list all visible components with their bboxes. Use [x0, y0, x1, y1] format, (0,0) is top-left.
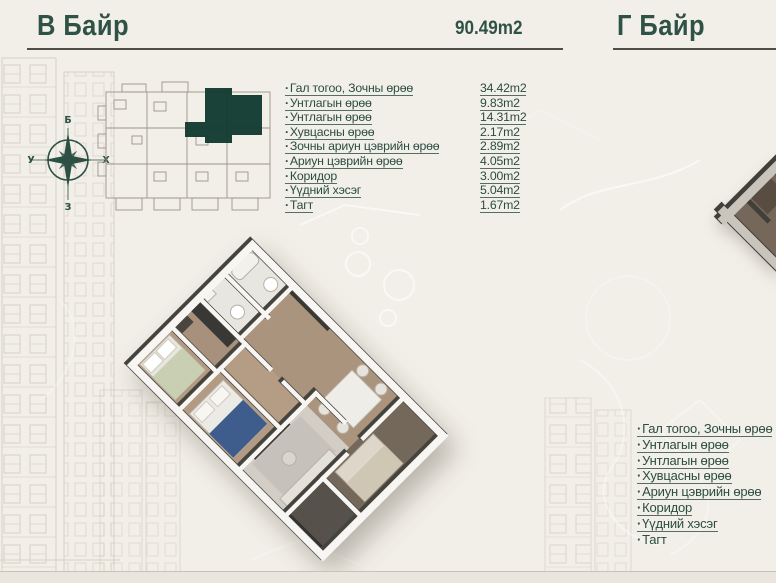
- section-b-title: В Байр: [37, 10, 129, 43]
- room-row: Гал тогоо, Зочны өрөө 34.42m2: [285, 81, 547, 96]
- room-row: Коридор 3.00m2: [285, 169, 547, 184]
- room-area: 3.00m2: [480, 169, 520, 184]
- room-list-g: Гал тогоо, Зочны өрөө Унтлагын өрөө Унтл…: [637, 421, 776, 547]
- room-label: Зочны ариун цэврийн өрөө: [285, 139, 439, 154]
- room-label: Унтлагын өрөө: [637, 453, 729, 469]
- room-row: Үүдний хэсэг: [637, 516, 776, 532]
- apartment-3d-plan-b: [55, 188, 500, 583]
- room-label: Коридор: [285, 169, 337, 184]
- room-row: Хувцасны өрөө: [637, 468, 776, 484]
- section-g-header-rule: [613, 48, 776, 50]
- room-row: Хувцасны өрөө 2.17m2: [285, 125, 547, 140]
- room-row: Унтлагын өрөө: [637, 437, 776, 453]
- room-label: Тагт: [637, 532, 667, 548]
- room-area: 2.17m2: [480, 125, 520, 140]
- room-row: Тагт: [637, 532, 776, 548]
- room-row: Гал тогоо, Зочны өрөө: [637, 421, 776, 437]
- section-b-header-rule: [27, 48, 563, 50]
- room-label: Гал тогоо, Зочны өрөө: [637, 421, 772, 437]
- room-row: Коридор: [637, 500, 776, 516]
- key-plan-highlighted-unit: [185, 88, 262, 143]
- room-label: Гал тогоо, Зочны өрөө: [285, 81, 413, 96]
- room-area: 14.31m2: [480, 110, 526, 125]
- room-row: Унтлагын өрөө 9.83m2: [285, 96, 547, 111]
- room-row: Унтлагын өрөө: [637, 453, 776, 469]
- room-area: 34.42m2: [480, 81, 526, 96]
- room-row: Унтлагын өрөө 14.31m2: [285, 110, 547, 125]
- room-label: Үүдний хэсэг: [637, 516, 718, 532]
- room-row: Ариун цэврийн өрөө: [637, 484, 776, 500]
- section-g-title: Г Байр: [617, 10, 705, 43]
- room-label: Хувцасны өрөө: [285, 125, 374, 140]
- room-label: Унтлагын өрөө: [285, 96, 372, 111]
- room-label: Хувцасны өрөө: [637, 468, 732, 484]
- compass-label-top: Б: [64, 115, 71, 126]
- room-row: Ариун цэврийн өрөө 4.05m2: [285, 154, 547, 169]
- room-label: Коридор: [637, 500, 692, 516]
- room-label: Унтлагын өрөө: [637, 437, 729, 453]
- room-area: 9.83m2: [480, 96, 520, 111]
- room-area: 2.89m2: [480, 139, 520, 154]
- apartment-3d-plan-g-partial: [695, 135, 776, 325]
- room-label: Унтлагын өрөө: [285, 110, 372, 125]
- compass-label-left: У: [27, 155, 35, 166]
- page-bottom-strip: [0, 571, 776, 583]
- room-label: Ариун цэврийн өрөө: [637, 484, 761, 500]
- section-b-total-area: 90.49m2: [455, 18, 523, 40]
- room-row: Зочны ариун цэврийн өрөө 2.89m2: [285, 139, 547, 154]
- room-area: 4.05m2: [480, 154, 520, 169]
- floorplan-brochure-page: В Байр 90.49m2 Г Байр Б Х З У: [0, 0, 776, 583]
- room-label: Ариун цэврийн өрөө: [285, 154, 403, 169]
